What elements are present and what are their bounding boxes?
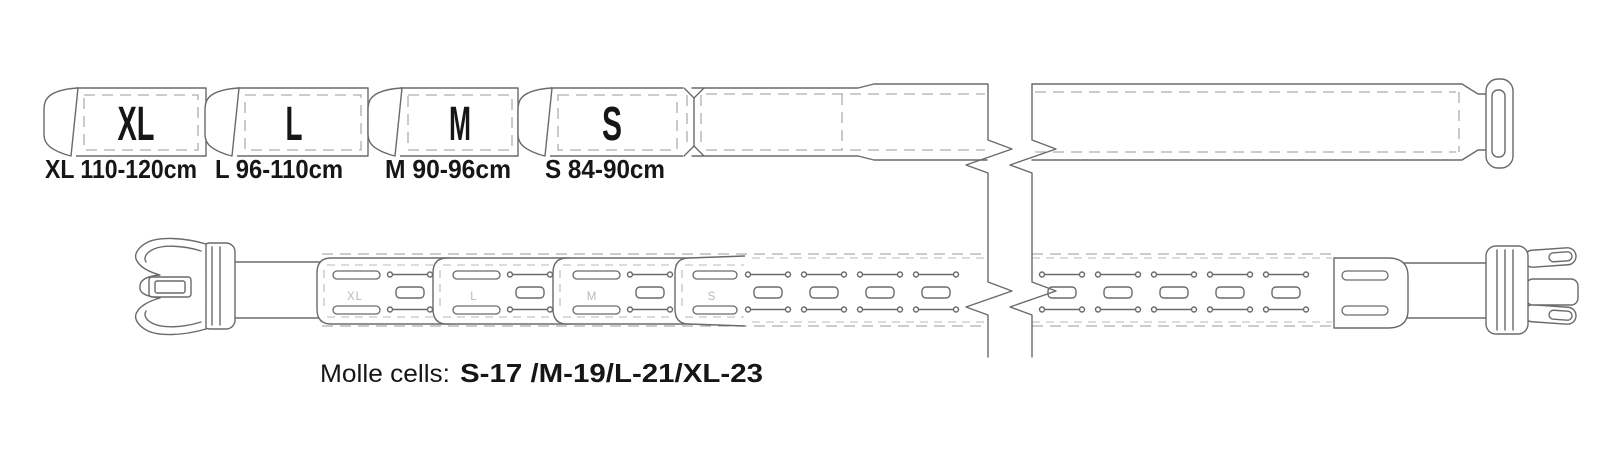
segment-label-s: S: [602, 98, 622, 151]
sleeve-end-seam: [684, 88, 704, 156]
belt-tongue-panel: [1334, 258, 1408, 328]
molle-slot: [1342, 306, 1388, 315]
molle-slot: [453, 271, 500, 279]
molle-slot: [333, 271, 380, 279]
buckle-prong-bottom: [1524, 304, 1577, 325]
buckle-prong-top: [1524, 247, 1577, 268]
molle-note-prefix: Molle cells:: [320, 360, 450, 388]
molle-panel-l: L: [433, 258, 570, 324]
size-range-l: L 96-110cm: [215, 154, 343, 184]
strap-left: [233, 262, 322, 318]
segment-label-l: L: [286, 98, 303, 151]
belt-tip-l: [205, 88, 239, 156]
molle-panel-xl: XL: [317, 258, 450, 324]
belt-end-loop: [1486, 79, 1513, 168]
segment-label-m: M: [449, 98, 471, 151]
strap-right: [1400, 263, 1490, 318]
size-range-m: M 90-96cm: [385, 154, 511, 184]
belt-segment-l: [237, 88, 368, 156]
molle-slot: [573, 306, 620, 314]
molle-columns: [746, 272, 1309, 312]
molle-panel-label-l: L: [470, 291, 477, 303]
molle-slot: [693, 271, 737, 279]
molle-slot: [333, 306, 380, 314]
belt-tip-m: [368, 88, 402, 156]
buckle-body: [1486, 246, 1528, 334]
size-range-xl: XL 110-120cm: [45, 154, 197, 184]
size-ranges: XL 110-120cm L 96-110cm M 90-96cm S 84-9…: [45, 154, 665, 184]
buckle-body: [136, 238, 206, 334]
molle-slot: [453, 306, 500, 314]
molle-panel-label-xl: XL: [347, 291, 363, 303]
belt-diagram-canvas: XL L M S XL 110-120cm L 96-110cm M 90-96…: [0, 0, 1600, 473]
belt-tip-s: [518, 88, 552, 156]
buckle-tongue: [1526, 279, 1578, 305]
molle-panel-m: M: [553, 258, 692, 324]
molle-panel-s: S: [675, 256, 745, 326]
molle-note: Molle cells: S-17 /M-19/L-21/XL-23: [320, 358, 763, 388]
buckle-left: [136, 238, 235, 334]
size-range-s: S 84-90cm: [545, 154, 665, 184]
segment-label-xl: XL: [118, 98, 155, 151]
break-marks: [966, 84, 1056, 357]
molle-note-values: S-17 /M-19/L-21/XL-23: [460, 358, 763, 388]
molle-slot: [573, 271, 620, 279]
belt-strap-middle: [684, 84, 987, 160]
molle-slot: [1342, 271, 1388, 280]
molle-panel-label-m: M: [587, 291, 598, 303]
belt-strap-right: [1032, 79, 1513, 168]
molle-belt: XL L M: [136, 238, 1578, 334]
buckle-right: [1486, 246, 1578, 334]
molle-slot: [693, 306, 737, 314]
belt-size-diagram: XL L M S XL 110-120cm L 96-110cm M 90-96…: [0, 0, 1600, 473]
belt-tip-xl: [44, 88, 78, 156]
molle-panel-label-s: S: [708, 291, 717, 303]
segment-body: [237, 88, 368, 156]
